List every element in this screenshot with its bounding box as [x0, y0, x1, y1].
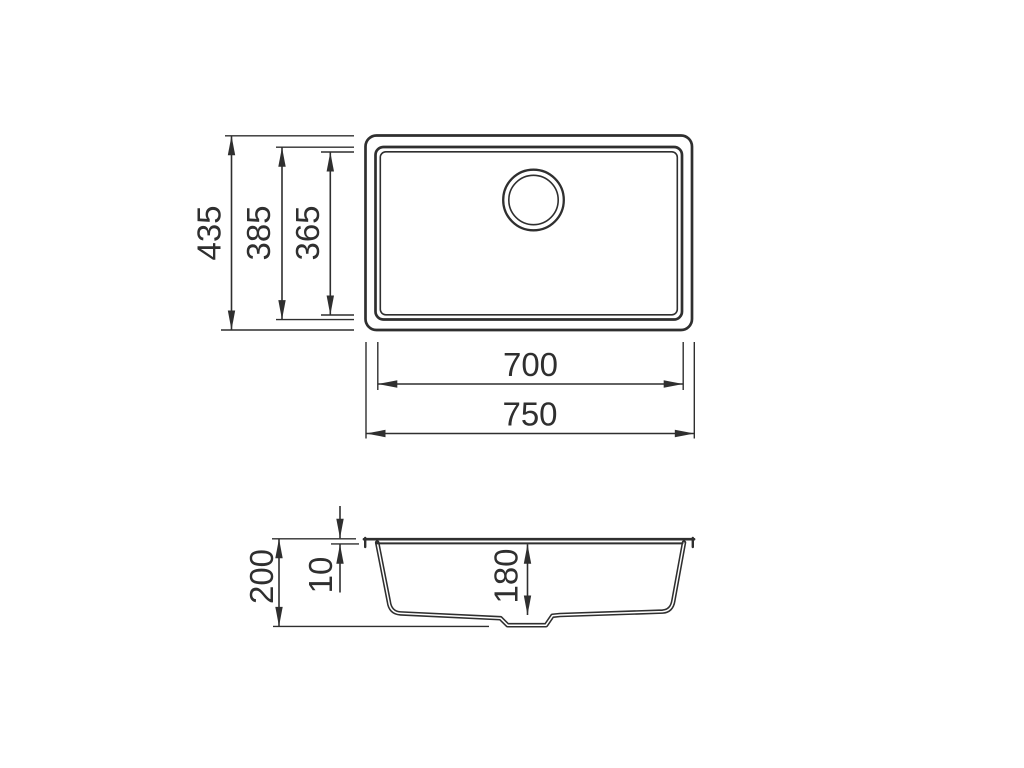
top-view-outer-edge: [366, 136, 693, 331]
sink-dimension-drawing: 435 385 365 700 750: [0, 0, 1024, 768]
drawing-canvas: 435 385 365 700 750: [0, 0, 1024, 768]
dim-label-bowl-inner-height: 365: [289, 205, 326, 260]
section-view-dimensions: 200 10 180: [243, 506, 528, 626]
sink-top-view: [366, 136, 693, 331]
dim-label-bowl-width: 700: [503, 346, 558, 383]
top-view-horizontal-dimensions: 700 750: [366, 342, 694, 439]
dim-label-overall-height: 435: [191, 205, 228, 260]
dim-label-overall-depth: 200: [243, 549, 280, 604]
dim-label-bowl-height: 385: [240, 205, 277, 260]
top-view-vertical-dimensions: 435 385 365: [191, 136, 355, 330]
dim-label-rim-height: 10: [302, 557, 339, 594]
drain-inner-circle-icon: [509, 175, 558, 224]
dim-label-bowl-depth: 180: [488, 548, 525, 603]
drain-outer-circle-icon: [503, 170, 564, 231]
top-view-bowl-rim-edge: [376, 147, 683, 320]
dim-label-overall-width: 750: [502, 396, 557, 433]
